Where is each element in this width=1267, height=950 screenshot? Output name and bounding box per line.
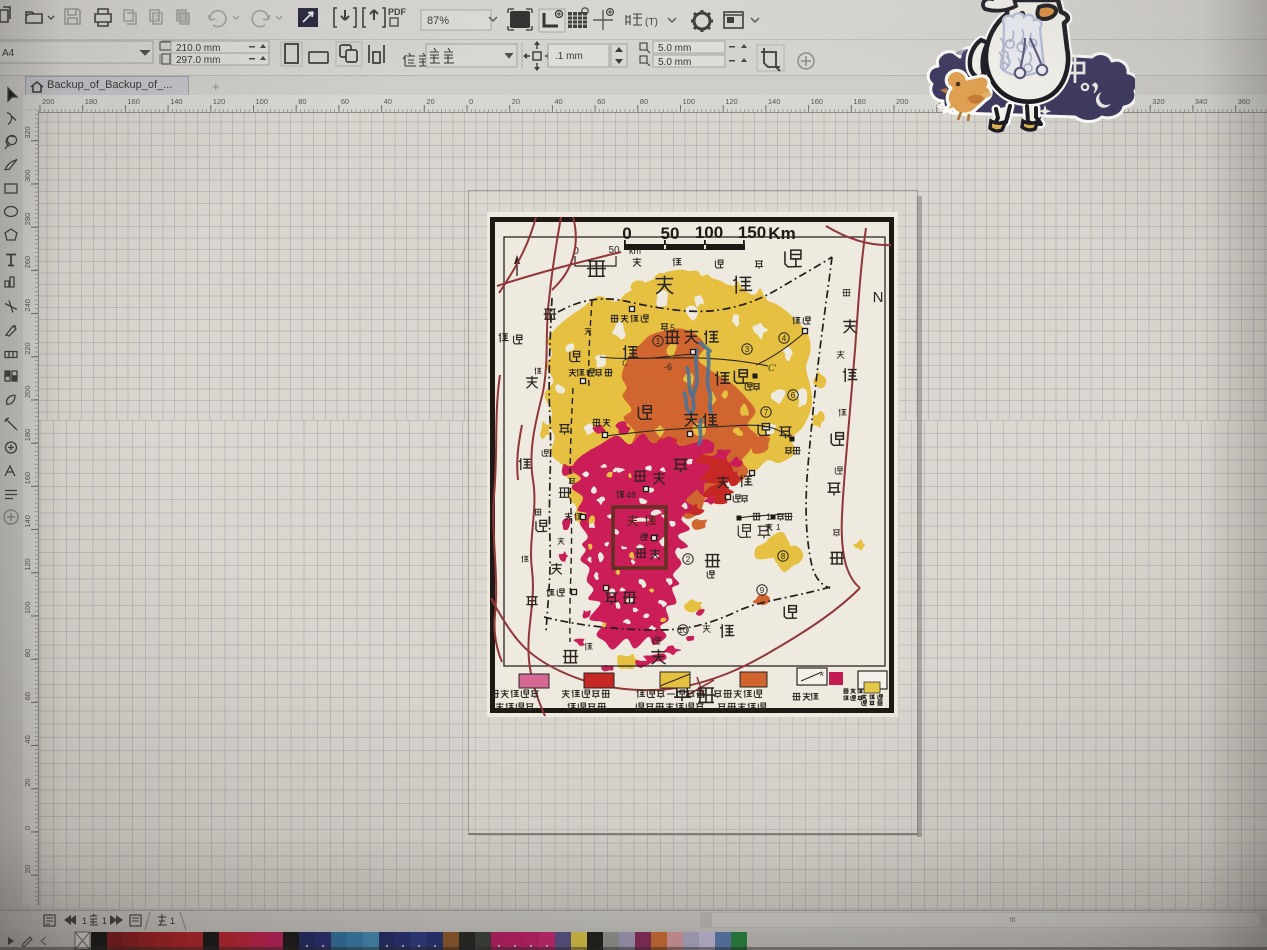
svg-text:180: 180 [23,429,32,442]
svg-text:2: 2 [686,555,691,564]
svg-text:40: 40 [554,97,562,106]
svg-text:200: 200 [23,385,32,398]
svg-text:80: 80 [640,97,648,106]
svg-text:10: 10 [679,626,688,635]
svg-text:1: 1 [82,916,87,926]
svg-text:(T): (T) [645,17,658,28]
svg-text:120: 120 [23,558,32,571]
svg-text:210.0 mm: 210.0 mm [176,43,220,54]
svg-text:3: 3 [745,345,750,354]
svg-text:.1 mm: .1 mm [555,51,583,62]
svg-text:40: 40 [23,735,32,743]
svg-text:240: 240 [23,299,32,312]
svg-text:20: 20 [512,97,520,106]
svg-text:km: km [629,246,641,256]
svg-text:260: 260 [23,256,32,269]
svg-text:200: 200 [896,97,909,106]
svg-text:340: 340 [1195,97,1208,106]
svg-text:360: 360 [1238,97,1251,106]
svg-text:N: N [873,289,884,306]
svg-text:50: 50 [661,224,680,243]
svg-text:1: 1 [776,523,781,532]
svg-text:8: 8 [781,552,786,561]
svg-text:C': C' [768,363,777,373]
svg-text:100: 100 [23,601,32,614]
svg-text:100: 100 [256,97,269,106]
svg-text:80: 80 [23,649,32,657]
svg-text:180: 180 [853,97,866,106]
svg-text:5.0 mm: 5.0 mm [658,57,691,68]
svg-text:180: 180 [85,97,98,106]
svg-text:120: 120 [725,97,738,106]
svg-text:1: 1 [170,916,175,926]
svg-text:20: 20 [23,778,32,786]
svg-text:20: 20 [426,97,434,106]
svg-text:160: 160 [127,97,140,106]
svg-text:60: 60 [597,97,605,106]
svg-text:120: 120 [213,97,226,106]
svg-text:87%: 87% [427,15,449,27]
svg-text:40: 40 [384,97,392,106]
svg-text:C: C [622,358,629,368]
svg-text:80: 80 [298,97,306,106]
svg-text:1: 1 [766,512,771,522]
svg-text:0: 0 [23,826,32,830]
svg-text:100: 100 [695,223,723,242]
svg-text:5.0 mm: 5.0 mm [658,43,691,54]
svg-text:48: 48 [626,490,636,500]
svg-text:A': A' [820,672,824,678]
svg-text:60: 60 [23,692,32,700]
svg-text:0: 0 [469,97,473,106]
svg-text:A4: A4 [2,48,15,59]
svg-text:5: 5 [670,323,675,333]
svg-text:297.0 mm: 297.0 mm [176,55,220,66]
svg-text:20: 20 [23,865,32,873]
svg-text:320: 320 [23,126,32,139]
svg-text:140: 140 [170,97,183,106]
svg-text:-6: -6 [664,362,672,372]
svg-text:6: 6 [791,391,796,400]
svg-text:280: 280 [23,213,32,226]
svg-text:220: 220 [23,342,32,355]
svg-text:Km: Km [768,224,795,243]
svg-text:7: 7 [764,408,769,417]
svg-text:160: 160 [23,472,32,485]
svg-text:140: 140 [23,515,32,528]
svg-text:140: 140 [768,97,781,106]
svg-text:PDF: PDF [388,7,407,17]
svg-text:160: 160 [811,97,824,106]
svg-text:1: 1 [102,916,107,926]
svg-text:9: 9 [760,586,765,595]
svg-text:1: 1 [656,337,661,346]
svg-text:4: 4 [782,334,787,343]
svg-text:100: 100 [683,97,696,106]
svg-text:200: 200 [42,97,55,106]
svg-text:320: 320 [1152,97,1165,106]
svg-text:0: 0 [622,224,631,243]
svg-text:60: 60 [341,97,349,106]
svg-text:150: 150 [738,223,766,242]
svg-text:300: 300 [23,169,32,182]
